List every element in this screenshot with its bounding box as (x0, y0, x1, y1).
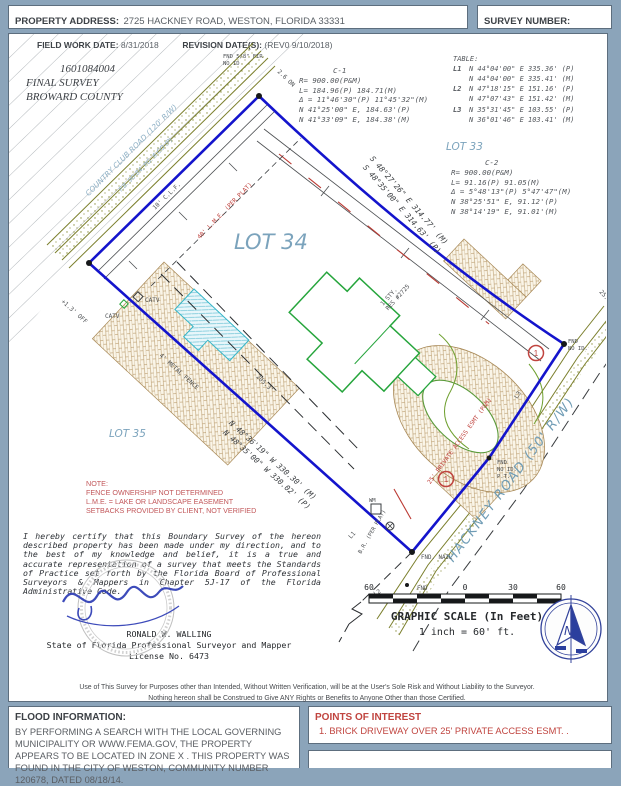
poi-item: 1. BRICK DRIVEWAY OVER 25' PRIVATE ACCES… (319, 726, 605, 736)
found-label: FND (417, 586, 428, 592)
compass-north-label: N (564, 624, 573, 638)
dimension-25: 25.0' (597, 289, 606, 307)
found-no-id-label: FND (568, 339, 578, 345)
scale-tick: 60 (556, 583, 566, 592)
poi-marker-number: 1 (534, 349, 539, 358)
disclaimer-line1: Use of This Survey for Purposes other th… (9, 682, 605, 693)
bearing-bottom-measured: N 48°36'19" W 330.30' (M) (226, 418, 318, 502)
pt-label2: NO ID. (497, 467, 517, 473)
flood-title: FLOOD INFORMATION: (15, 712, 293, 723)
red-tick (394, 489, 411, 519)
survey-sheet: FIELD WORK DATE: 8/31/2018 REVISION DATE… (8, 33, 608, 702)
compass-rose-icon: N (541, 595, 601, 663)
survey-number-box: SURVEY NUMBER: 1601.0840-04 (477, 5, 612, 29)
disclaimer-line2: Nothing hereon shall be Construed to Giv… (9, 693, 605, 704)
found-no-id-label2: NO ID. (568, 346, 588, 352)
bearing-bottom-plat: N 48°35'00" W 330.02' (P) (221, 427, 313, 511)
found-iron-rod-label2: NO ID (223, 61, 240, 67)
brick-driveway (365, 239, 573, 521)
scale-tick: 0 (463, 583, 468, 592)
points-of-interest-box: POINTS OF INTEREST 1. BRICK DRIVEWAY OVE… (308, 706, 612, 744)
poi-marker-number: 1 (444, 475, 449, 484)
empty-notes-box (308, 750, 612, 768)
survey-drawing: 1 1 LOT 34 LOT 33 LOT 35 HACKNEY ROAD (5… (9, 34, 606, 682)
scale-tick: 60 (364, 583, 374, 592)
property-address-value: 2725 HACKNEY ROAD, WESTON, FLORIDA 33331 (123, 16, 344, 27)
disclaimer: Use of This Survey for Purposes other th… (9, 682, 605, 704)
flood-text: BY PERFORMING A SEARCH WITH THE LOCAL GO… (15, 726, 293, 786)
catv-label: CATV (145, 297, 160, 304)
scale-tick: 30 (508, 583, 518, 592)
fence-offset-label: +1.3' OFF (60, 298, 89, 325)
found-nail-label: FND. NAIL (421, 555, 453, 561)
pt-label: FND (497, 460, 507, 466)
property-address-label: PROPERTY ADDRESS: (15, 16, 119, 27)
survey-number-label: SURVEY NUMBER: (484, 16, 570, 27)
graphic-scale-title: GRAPHIC SCALE (In Feet) (391, 610, 543, 623)
surveyor-seal (78, 560, 174, 656)
segment-l1-label: L1 (347, 530, 357, 540)
lot-34-label: LOT 34 (234, 230, 308, 254)
pt-label3: P.T. (497, 474, 510, 480)
found-iron-rod-label: FND 5/8" FIR (223, 54, 263, 60)
lot-33-label: LOT 33 (446, 141, 483, 153)
lot-35-label: LOT 35 (109, 428, 146, 440)
water-meter-label: WM (369, 498, 376, 504)
bearing-top-measured: S 48°27'26" E 314.77' (M) (368, 154, 450, 246)
catv-label: CATV (105, 313, 120, 320)
flood-information-box: FLOOD INFORMATION: BY PERFORMING A SEARC… (8, 706, 300, 768)
corner-offset-label: 2.6 ON (276, 68, 297, 88)
poi-title: POINTS OF INTEREST (315, 712, 605, 723)
property-address-box: PROPERTY ADDRESS: 2725 HACKNEY ROAD, WES… (8, 5, 468, 29)
graphic-scale-ratio: 1 inch = 60' ft. (419, 627, 515, 638)
bearing-top-plat: S 48°35'00" E 314.63' (P) (361, 163, 443, 255)
